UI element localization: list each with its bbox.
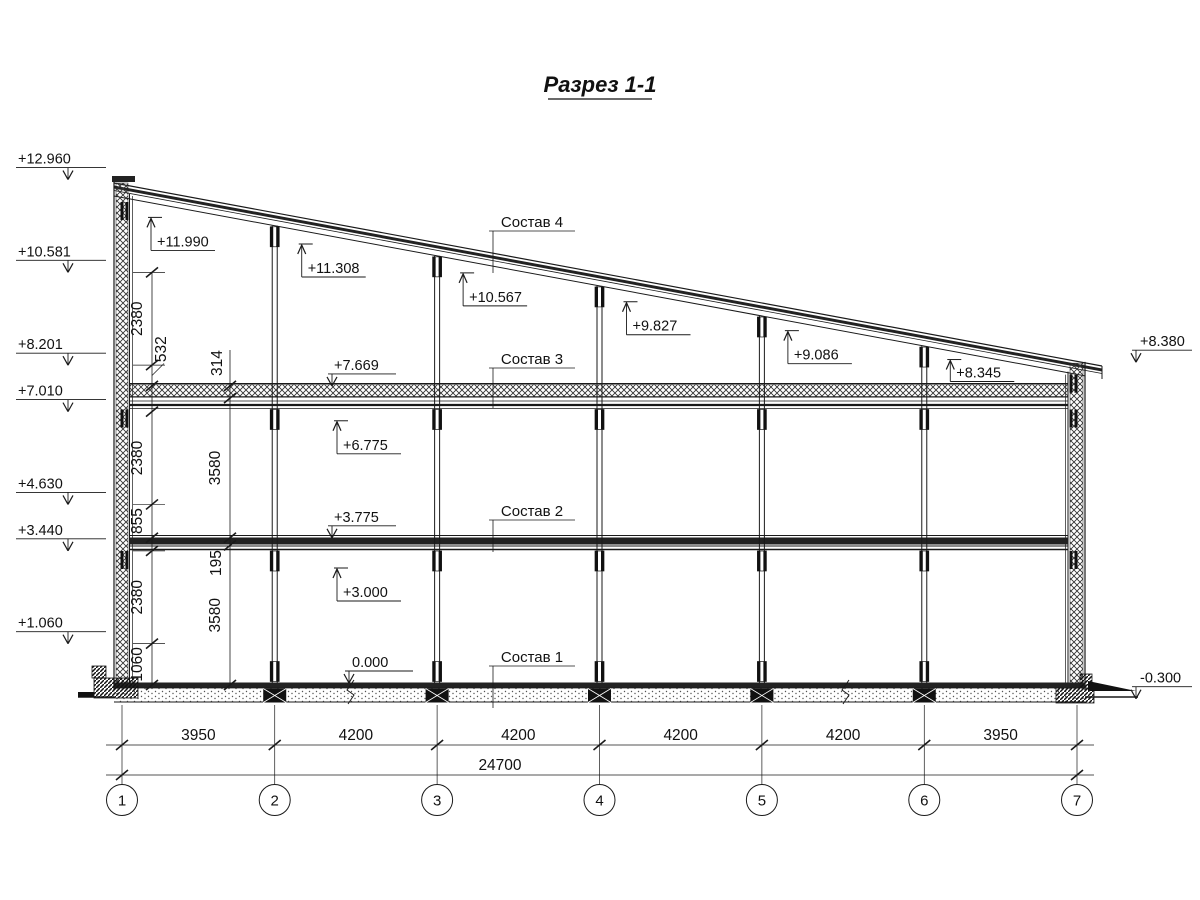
column-splice-plate <box>276 551 279 571</box>
wall-splice-plate <box>1070 551 1073 569</box>
up-arrow-icon <box>298 245 302 254</box>
elevation-mark-label: +3.775 <box>334 510 379 526</box>
column-splice-plate <box>439 410 442 430</box>
foundation-left-step <box>92 666 106 678</box>
down-arrow-icon <box>63 495 68 504</box>
vdim-label: 532 <box>153 336 170 362</box>
wall-splice-plate <box>121 202 124 220</box>
composition-labels: Состав 4Состав 3Состав 2Состав 1 <box>489 214 575 708</box>
axis-number: 2 <box>271 793 279 810</box>
elevation-mark-label: -0.300 <box>1140 671 1181 687</box>
hdim-label: 3950 <box>181 727 216 744</box>
column-splice-plate <box>926 551 929 571</box>
roof-panel-band <box>114 186 1102 372</box>
wall-splice-plate <box>1070 410 1073 428</box>
column-splice-plate <box>601 410 604 430</box>
elevation-mark-label: +8.380 <box>1140 334 1185 350</box>
column-splice-plate <box>757 662 760 682</box>
column-splice-plate <box>601 662 604 682</box>
wall-splice-plate <box>1075 410 1078 428</box>
down-arrow-icon <box>68 171 73 180</box>
wall-left-insulation <box>116 183 128 688</box>
column-splice-plate <box>270 227 273 247</box>
column-splice-plate <box>595 662 598 682</box>
elevation-mark-label: +12.960 <box>18 152 71 168</box>
column-splice-plate <box>920 662 923 682</box>
column-splice-plate <box>433 257 436 277</box>
wall-splice-plate <box>1070 375 1073 393</box>
building-structure <box>78 176 1138 704</box>
elevation-mark-label: +10.567 <box>469 290 522 306</box>
elevation-mark-label: +10.581 <box>18 244 71 260</box>
up-arrow-icon <box>627 303 631 312</box>
elevation-mark-label: +7.669 <box>334 358 379 374</box>
wall-splice-plate <box>126 410 129 428</box>
wall-splice-plate <box>121 551 124 569</box>
down-arrow-icon <box>1136 690 1141 699</box>
section-drawing: Разрез 1-1 +12.960+10.581+8.201+7.010+4.… <box>0 0 1200 900</box>
column-splice-plate <box>920 410 923 430</box>
wall-left-parapet-cap <box>112 176 135 182</box>
vdim-label: 195 <box>208 550 225 576</box>
composition-label: Состав 1 <box>501 649 563 666</box>
elevation-mark-label: +8.201 <box>18 337 63 353</box>
composition-label: Состав 3 <box>501 351 563 368</box>
down-arrow-icon <box>63 356 68 365</box>
column-splice-plate <box>276 227 279 247</box>
down-arrow-icon <box>63 263 68 272</box>
up-arrow-icon <box>333 422 337 431</box>
column-splice-plate <box>601 287 604 307</box>
up-arrow-icon <box>950 361 954 370</box>
up-arrow-icon <box>302 245 306 254</box>
column-splice-plate <box>926 662 929 682</box>
up-arrow-icon <box>337 422 341 431</box>
down-arrow-icon <box>344 674 349 683</box>
elevation-mark-label: 0.000 <box>352 655 388 671</box>
column-splice-plate <box>595 287 598 307</box>
elevation-mark-label: +11.990 <box>157 234 209 250</box>
down-arrow-icon <box>332 529 337 538</box>
floor-top-band <box>114 683 1085 689</box>
column-splice-plate <box>276 662 279 682</box>
column-splice-plate <box>926 410 929 430</box>
vdim-label: 2380 <box>129 440 146 475</box>
up-arrow-icon <box>151 218 155 227</box>
axis-number: 3 <box>433 793 441 810</box>
column-splice-plate <box>926 347 929 367</box>
column-splice-plate <box>439 257 442 277</box>
wall-splice-plate <box>1075 375 1078 393</box>
up-arrow-icon <box>337 569 341 578</box>
down-arrow-icon <box>63 403 68 412</box>
down-arrow-icon <box>68 356 73 365</box>
vdim-label: 3580 <box>207 598 224 633</box>
axis-number: 1 <box>118 793 126 810</box>
up-arrow-icon <box>147 218 151 227</box>
wall-splice-plate <box>121 410 124 428</box>
column-splice-plate <box>757 551 760 571</box>
up-arrow-icon <box>946 361 950 370</box>
slab3-insulation <box>130 385 1068 397</box>
up-arrow-icon <box>463 274 467 283</box>
axis-number: 5 <box>758 793 766 810</box>
down-arrow-icon <box>68 635 73 644</box>
elevation-mark-label: +11.308 <box>308 261 360 277</box>
up-arrow-icon <box>784 332 788 341</box>
elevation-mark-label: +3.440 <box>18 523 63 539</box>
wall-splice-plate <box>126 202 129 220</box>
column-splice-plate <box>439 551 442 571</box>
column-splice-plate <box>276 410 279 430</box>
hdim-label: 4200 <box>501 727 536 744</box>
column-splice-plate <box>920 551 923 571</box>
elevation-mark-label: +4.630 <box>18 476 63 492</box>
elevation-mark-label: +9.827 <box>633 319 678 335</box>
elevation-mark-label: +9.086 <box>794 348 839 364</box>
column-splice-plate <box>270 662 273 682</box>
composition-label: Состав 4 <box>501 214 563 231</box>
down-arrow-icon <box>68 403 73 412</box>
up-arrow-icon <box>333 569 337 578</box>
down-arrow-icon <box>63 171 68 180</box>
down-arrow-icon <box>1136 353 1141 362</box>
elevation-mark-label: +3.000 <box>343 585 388 601</box>
column-splice-plate <box>595 551 598 571</box>
axis-number: 7 <box>1073 793 1081 810</box>
column-splice-plate <box>439 662 442 682</box>
roof-line <box>114 191 1102 374</box>
hdim-label: 3950 <box>983 727 1018 744</box>
grid-axes: 1234567 <box>107 785 1093 816</box>
down-arrow-icon <box>1131 353 1136 362</box>
hdim-total-label: 24700 <box>478 757 521 774</box>
drawing-title: Разрез 1-1 <box>544 72 657 97</box>
column-splice-plate <box>757 410 760 430</box>
elevation-mark-label: +7.010 <box>18 384 63 400</box>
column-splice-plate <box>270 551 273 571</box>
up-arrow-icon <box>788 332 792 341</box>
column-splice-plate <box>763 662 766 682</box>
vdim-label: 855 <box>129 508 146 534</box>
foundation-right-ramp <box>1088 681 1136 691</box>
column-splice-plate <box>433 551 436 571</box>
column-splice-plate <box>920 347 923 367</box>
wall-splice-plate <box>1075 551 1078 569</box>
up-arrow-icon <box>623 303 627 312</box>
column-splice-plate <box>763 317 766 337</box>
elevation-mark-label: +6.775 <box>343 438 388 454</box>
column-splice-plate <box>595 410 598 430</box>
vdim-label: 2380 <box>129 301 146 336</box>
up-arrow-icon <box>459 274 463 283</box>
elevation-mark-label: +1.060 <box>18 616 63 632</box>
ground-wedge-left <box>78 692 94 697</box>
column-splice-plate <box>433 662 436 682</box>
down-arrow-icon <box>68 263 73 272</box>
drawing-sheet: Разрез 1-1 +12.960+10.581+8.201+7.010+4.… <box>0 0 1200 900</box>
vdim-label: 2380 <box>129 580 146 615</box>
hdim-label: 4200 <box>339 727 374 744</box>
down-arrow-icon <box>63 635 68 644</box>
column-splice-plate <box>433 410 436 430</box>
hdim-label: 4200 <box>663 727 698 744</box>
composition-label: Состав 2 <box>501 503 563 520</box>
elevation-mark-label: +8.345 <box>956 366 1001 382</box>
wall-splice-plate <box>126 551 129 569</box>
axis-number: 6 <box>920 793 928 810</box>
down-arrow-icon <box>68 542 73 551</box>
hdim-label: 4200 <box>826 727 861 744</box>
column-splice-plate <box>757 317 760 337</box>
vdim-label: 3580 <box>207 450 224 485</box>
down-arrow-icon <box>68 495 73 504</box>
column-splice-plate <box>763 410 766 430</box>
down-arrow-icon <box>327 529 332 538</box>
roof-top-line <box>114 183 1102 366</box>
roof-underside-line <box>114 196 1085 376</box>
vdim-label: 1060 <box>129 647 146 682</box>
vdim-label: 314 <box>209 350 226 376</box>
column-splice-plate <box>763 551 766 571</box>
column-splice-plate <box>270 410 273 430</box>
axis-number: 4 <box>595 793 603 810</box>
slab2-deck <box>130 538 1068 545</box>
down-arrow-icon <box>63 542 68 551</box>
column-splice-plate <box>601 551 604 571</box>
